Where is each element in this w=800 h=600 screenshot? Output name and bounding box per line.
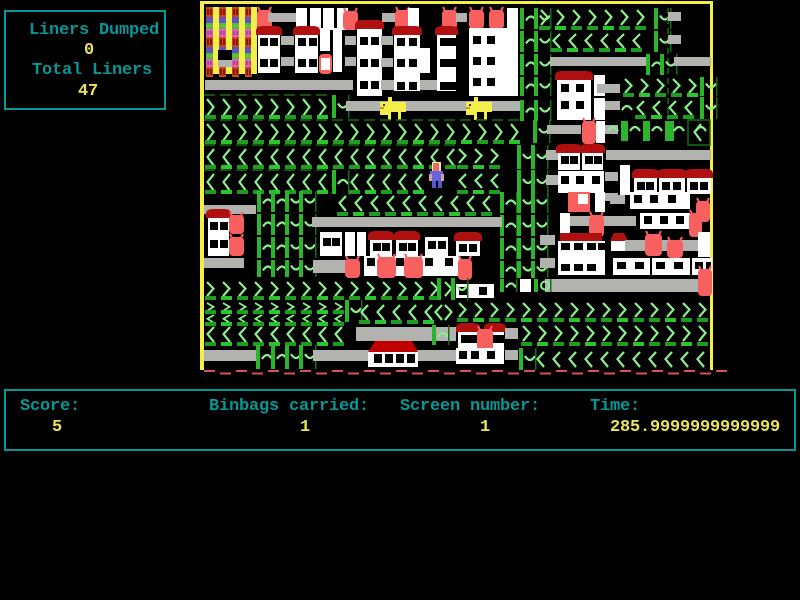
svg-text:285.9999999999999: 285.9999999999999: [610, 418, 780, 437]
svg-text:5: 5: [52, 418, 62, 437]
svg-text:1: 1: [300, 418, 310, 437]
svg-text:0: 0: [84, 41, 94, 60]
svg-text:Score:: Score:: [20, 397, 80, 416]
svg-text:Screen number:: Screen number:: [400, 397, 540, 416]
svg-text:Time:: Time:: [590, 397, 640, 416]
svg-text:1: 1: [480, 418, 490, 437]
svg-text:47: 47: [78, 82, 98, 101]
svg-text:Liners Dumped: Liners Dumped: [29, 21, 159, 40]
svg-text:Total Liners: Total Liners: [32, 61, 152, 80]
svg-text:Binbags carried:: Binbags carried:: [209, 397, 369, 416]
